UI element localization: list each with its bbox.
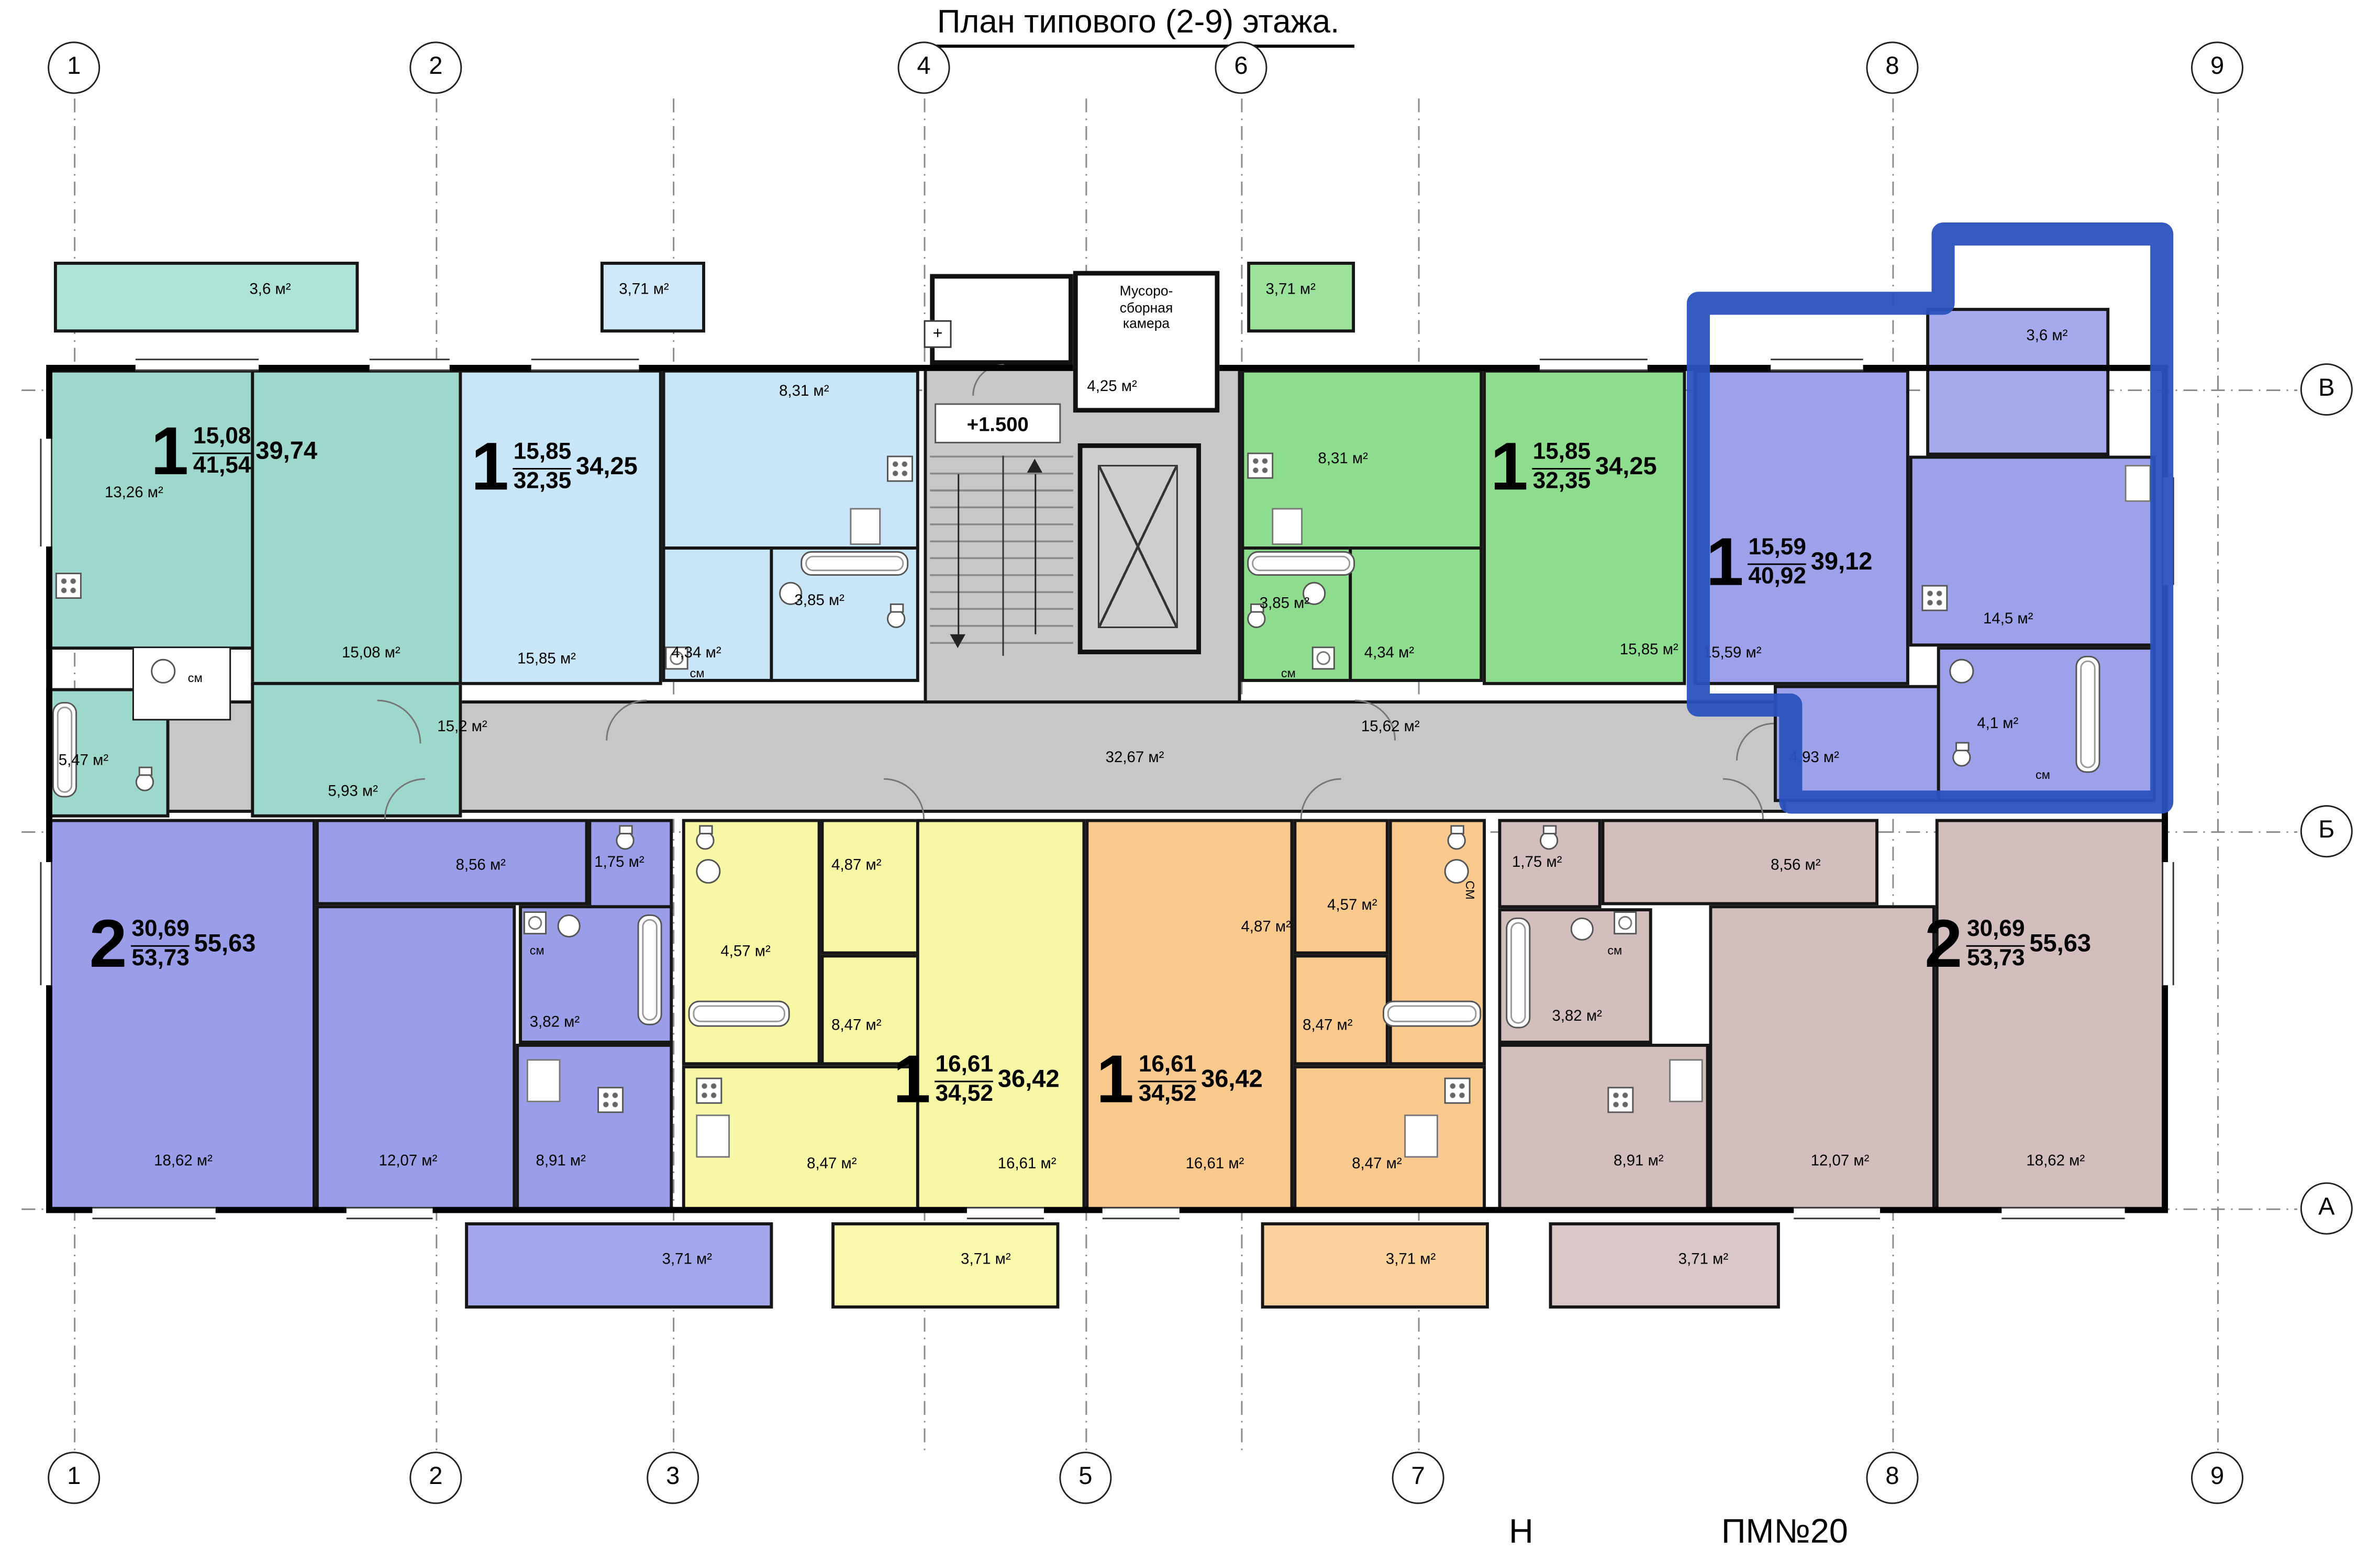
fridge-icon [527, 1059, 561, 1102]
blue-living-area: 15,85 м² [517, 653, 576, 668]
yellow-hall-area: 4,87 м² [831, 859, 881, 874]
blue-hall-area: 4,34 м² [671, 646, 721, 662]
axis-bubble-top-6: 6 [1215, 41, 1267, 94]
stair-divider [1002, 456, 1004, 656]
orange-room-count: 1 [1096, 1053, 1134, 1107]
facade-window [92, 1207, 215, 1220]
facade-window [2162, 862, 2174, 985]
orange-bathroom [1389, 819, 1486, 1066]
teal-bath-area: 5,47 м² [59, 754, 108, 769]
teal-area-heated: 41,54 [193, 453, 251, 479]
teal-kitchen [46, 370, 254, 650]
green-area-total: 34,25 [1595, 453, 1657, 481]
stove-icon [696, 1078, 722, 1104]
stove-icon [55, 573, 82, 599]
fridge-icon [1669, 1059, 1703, 1102]
beige-bedroom-area: 12,07 м² [1811, 1155, 1870, 1170]
axis-bubble-bottom-1: 1 [48, 1451, 100, 1504]
yellow-bathroom [682, 819, 821, 1066]
green-living-room [1483, 370, 1686, 685]
stair-flight-line [958, 474, 960, 634]
staircase [930, 456, 1073, 656]
garbage-room-label-2: сборная [1078, 299, 1215, 316]
stove-icon [1921, 585, 1948, 611]
teal-apartment-label: 1 15,0841,54 39,74 [151, 425, 317, 479]
yellow-room-count: 1 [893, 1053, 931, 1107]
beige-area-heated: 53,73 [1967, 946, 2025, 972]
violet-room-count: 1 [1706, 535, 1744, 589]
green-bath-area: 3,85 м² [1260, 597, 1309, 612]
purple2-wc-area: 1,75 м² [594, 856, 644, 871]
teal-balcony [54, 262, 359, 332]
bathtub-icon [688, 1001, 790, 1027]
beige-bath-area: 3,82 м² [1552, 1010, 1602, 1025]
page-title: План типового (2-9) этажа. [922, 5, 1355, 48]
facade-window [2001, 1207, 2125, 1220]
violet-bath-area: 4,1 м² [1977, 718, 2018, 733]
orange-kitchen-area: 8,47 м² [1352, 1158, 1402, 1173]
yellow-corridor-area: 8,47 м² [831, 1019, 881, 1034]
green-washer-label: см [1281, 668, 1296, 680]
orange-washer-label: СМ [1463, 880, 1476, 899]
beige-kitchen-area: 8,91 м² [1614, 1155, 1663, 1170]
orange-corridor [1293, 954, 1388, 1065]
orange-area-living: 16,61 [1139, 1053, 1196, 1081]
garbage-chute-icon: + [924, 320, 952, 348]
yellow-living-room [916, 819, 1086, 1213]
orange-hallway [1293, 819, 1388, 955]
teal-washer-label: см [188, 673, 203, 685]
orange-balcony [1261, 1222, 1489, 1309]
axis-bubble-top-9: 9 [2191, 41, 2243, 94]
facade-window [1540, 359, 1648, 371]
axis-bubble-top-2: 2 [409, 41, 462, 94]
stove-icon [1607, 1087, 1633, 1113]
violet-area-total: 39,12 [1811, 549, 1873, 577]
axis-bubble-bottom-2: 2 [409, 1451, 462, 1504]
teal-area-living: 15,08 [193, 425, 251, 453]
teal-balcony-area: 3,6 м² [249, 283, 291, 298]
blue-washer-label: см [690, 668, 705, 680]
purple2-washer-label: см [530, 945, 544, 958]
blue-living-room [459, 370, 662, 685]
bathtub-icon [1247, 551, 1355, 576]
toilet-icon [1952, 742, 1969, 765]
green-living-area: 15,85 м² [1620, 643, 1678, 658]
violet-hall-area: 4,93 м² [1789, 751, 1839, 766]
washing-machine-icon [1312, 646, 1335, 669]
stove-icon [1444, 1078, 1471, 1104]
beige-wc-area: 1,75 м² [1512, 856, 1562, 871]
washing-machine-icon [1614, 911, 1637, 934]
bathtub-icon [52, 702, 77, 797]
teal-living-area: 15,08 м² [342, 646, 401, 662]
purple2-living-area: 18,62 м² [154, 1155, 213, 1170]
facade-window [1771, 359, 1863, 371]
stove-icon [597, 1087, 624, 1113]
green-apartment-label: 1 15,8532,35 34,25 [1491, 440, 1657, 494]
toilet-icon [1448, 825, 1464, 848]
violet-hallway [1774, 685, 1940, 802]
axis-bubble-top-1: 1 [48, 41, 100, 94]
yellow-balcony-area: 3,71 м² [961, 1253, 1010, 1268]
elevator-cab-icon [1098, 465, 1178, 628]
washbasin-icon [1949, 659, 1974, 684]
blue-area-living: 15,85 [514, 440, 571, 468]
orange-bath-area: 4,57 м² [1327, 899, 1377, 914]
yellow-apartment-label: 1 16,6134,52 36,42 [893, 1053, 1060, 1107]
toilet-icon [1540, 825, 1556, 848]
facade-window [40, 439, 52, 546]
beige-washer-label: см [1607, 945, 1622, 958]
beige-room-count: 2 [1925, 918, 1962, 972]
green-balcony-area: 3,71 м² [1266, 283, 1316, 298]
bathtub-icon [800, 551, 908, 576]
violet-balcony-area: 3,6 м² [2026, 329, 2067, 344]
washbasin-icon [1444, 859, 1469, 884]
orange-apartment-label: 1 16,6134,52 36,42 [1096, 1053, 1263, 1107]
facade-window [2162, 477, 2174, 585]
beige-area-total: 55,63 [2029, 931, 2091, 958]
axis-bubble-bottom-3: 3 [647, 1451, 699, 1504]
blue-kitchen-area: 8,31 м² [779, 385, 829, 400]
washbasin-icon [558, 914, 581, 937]
green-room-count: 1 [1491, 440, 1528, 494]
yellow-area-heated: 34,52 [936, 1081, 993, 1107]
teal-hall-area: 5,93 м² [328, 785, 377, 800]
facade-window [1794, 1207, 1880, 1220]
washing-machine-icon [524, 911, 547, 934]
facade-window [1103, 1207, 1180, 1220]
yellow-balcony [831, 1222, 1059, 1309]
blue-bath-area: 3,85 м² [795, 594, 844, 609]
orange-area-heated: 34,52 [1139, 1081, 1196, 1107]
yellow-living-area: 16,61 м² [998, 1158, 1056, 1173]
garbage-room-area: 4,25 м² [1087, 380, 1137, 395]
orange-area-total: 36,42 [1201, 1066, 1263, 1094]
violet-living-area: 15,59 м² [1703, 646, 1762, 662]
washbasin-icon [696, 859, 720, 884]
violet-kitchen-area: 14,5 м² [1983, 613, 2033, 628]
orange-hall-area: 4,87 м² [1241, 921, 1291, 936]
fridge-icon [850, 508, 881, 545]
corridor-left-area: 15,2 м² [437, 720, 487, 735]
axis-bubble-row-b: Б [2300, 805, 2353, 857]
bathtub-icon [2075, 656, 2100, 773]
violet-washer-label: см [2036, 770, 2050, 783]
orange-balcony-area: 3,71 м² [1386, 1253, 1436, 1268]
garbage-room-label-3: камера [1078, 316, 1215, 332]
stove-icon [1247, 453, 1273, 479]
beige-hall-area: 8,56 м² [1771, 859, 1820, 874]
stair-down-arrow [950, 634, 965, 648]
axis-bubble-top-4: 4 [898, 41, 950, 94]
green-area-living: 15,85 [1533, 440, 1591, 468]
violet-balcony [1926, 308, 2109, 455]
orange-living-room [1085, 819, 1293, 1213]
yellow-bath-area: 4,57 м² [720, 945, 770, 961]
violet-area-living: 15,59 [1748, 536, 1806, 564]
yellow-area-total: 36,42 [998, 1066, 1060, 1094]
elevator-shaft [1078, 443, 1201, 654]
facade-window [136, 359, 259, 371]
beige-hallway [1602, 819, 1878, 906]
teal-room-count: 1 [151, 425, 188, 479]
violet-area-heated: 40,92 [1748, 564, 1806, 590]
washbasin-icon [1571, 918, 1594, 941]
axis-bubble-bottom-9: 9 [2191, 1451, 2243, 1504]
washbasin-icon [151, 659, 175, 684]
blue-balcony-area: 3,71 м² [619, 283, 669, 298]
stair-up-arrow [1027, 459, 1042, 472]
floor-plan-drawing: План типового (2-9) этажа. 15,2 м² 32,67… [0, 0, 2380, 1536]
axis-bubble-bottom-8: 8 [1866, 1451, 1918, 1504]
purple2-hall-area: 8,56 м² [456, 859, 506, 874]
purple2-area-heated: 53,73 [131, 946, 189, 972]
facade-window [531, 359, 639, 371]
purple2-apartment-label: 2 30,6953,73 55,63 [90, 918, 256, 972]
fridge-icon [2125, 465, 2151, 502]
fridge-icon [1272, 508, 1303, 545]
teal-living-room [251, 370, 462, 685]
toilet-icon [136, 767, 152, 790]
beige-living-area: 18,62 м² [2026, 1155, 2085, 1170]
beige-area-living: 30,69 [1967, 918, 2025, 946]
purple2-balcony-area: 3,71 м² [662, 1253, 712, 1268]
facade-window [347, 1207, 433, 1220]
blue-area-total: 34,25 [576, 453, 638, 481]
axis-bubble-bottom-5: 5 [1059, 1451, 1111, 1504]
orange-corridor-area: 8,47 м² [1303, 1019, 1352, 1034]
beige-apartment-label: 2 30,6953,73 55,63 [1925, 918, 2091, 972]
level-mark: +1.500 [935, 404, 1061, 443]
fridge-icon [696, 1114, 730, 1157]
beige-balcony-area: 3,71 м² [1678, 1253, 1728, 1268]
purple2-kitchen-area: 8,91 м² [536, 1155, 585, 1170]
yellow-kitchen-area: 8,47 м² [807, 1158, 857, 1173]
facade-window [370, 359, 450, 371]
orange-living-area: 16,61 м² [1186, 1158, 1244, 1173]
purple2-area-living: 30,69 [131, 918, 189, 946]
bathtub-icon [1383, 1001, 1481, 1027]
purple2-area-total: 55,63 [194, 931, 256, 958]
purple2-room-count: 2 [90, 918, 127, 972]
axis-bubble-row-a: А [2300, 1182, 2353, 1235]
bathtub-icon [638, 914, 662, 1025]
stair-flight-line [1035, 474, 1037, 634]
toilet-icon [887, 604, 904, 627]
corridor-center-area: 32,67 м² [1106, 751, 1164, 766]
blue-room-count: 1 [471, 440, 509, 494]
axis-bubble-top-8: 8 [1866, 41, 1918, 94]
blue-area-heated: 32,35 [514, 469, 571, 495]
axis-line-9 [2217, 98, 2219, 1450]
axis-bubble-bottom-7: 7 [1392, 1451, 1444, 1504]
entrance-vestibule [930, 274, 1073, 365]
green-kitchen-area: 8,31 м² [1318, 453, 1367, 468]
fridge-icon [1404, 1114, 1438, 1157]
beige-balcony [1549, 1222, 1780, 1309]
purple2-balcony [465, 1222, 773, 1309]
teal-area-total: 39,74 [255, 438, 317, 466]
yellow-area-living: 16,61 [936, 1053, 993, 1081]
blue-apartment-label: 1 15,8532,35 34,25 [471, 440, 638, 494]
bathtub-icon [1506, 918, 1530, 1029]
corridor-right-area: 15,62 м² [1361, 720, 1420, 735]
axis-bubble-row-v: В [2300, 363, 2353, 416]
facade-window [40, 862, 52, 985]
purple2-hallway [316, 819, 588, 906]
toilet-icon [616, 825, 632, 848]
purple2-bedroom-area: 12,07 м² [379, 1155, 437, 1170]
purple2-bath-area: 3,82 м² [530, 1016, 580, 1031]
green-area-heated: 32,35 [1533, 469, 1591, 495]
teal-washer-niche [132, 646, 231, 720]
footer-text-fragment-right: ПМ№20 [1721, 1512, 1848, 1551]
garbage-room-label-1: Мусоро- [1078, 283, 1215, 299]
green-hall-area: 4,34 м² [1364, 646, 1414, 662]
toilet-icon [696, 825, 713, 848]
stove-icon [887, 456, 913, 482]
facade-window [967, 1207, 1044, 1220]
violet-apartment-label: 1 15,5940,92 39,12 [1706, 535, 1873, 589]
footer-text-fragment-left: Н [1509, 1512, 1533, 1551]
